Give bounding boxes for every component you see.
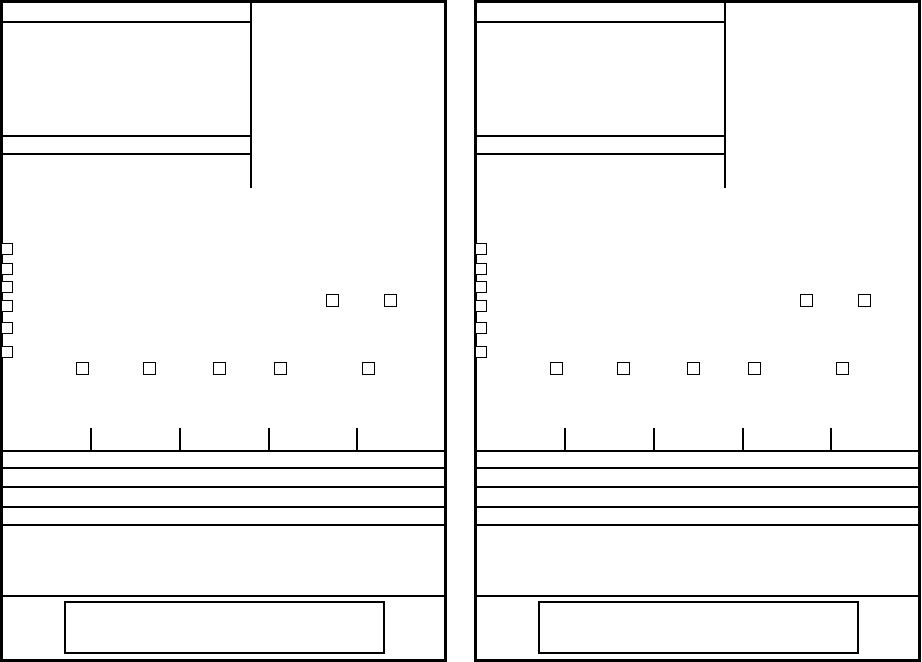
edge-checkbox-1[interactable] bbox=[475, 243, 487, 255]
edge-checkbox-3[interactable] bbox=[1, 281, 13, 293]
column-tick-mark-2 bbox=[653, 428, 655, 450]
category-checkbox-5[interactable] bbox=[836, 362, 849, 375]
column-tick-mark-4 bbox=[356, 428, 358, 450]
edge-checkbox-5[interactable] bbox=[1, 322, 13, 334]
form-sheet bbox=[0, 0, 922, 662]
column-tick-mark-2 bbox=[179, 428, 181, 450]
row-rule-4 bbox=[0, 506, 447, 508]
category-checkbox-2[interactable] bbox=[617, 362, 630, 375]
category-checkbox-4[interactable] bbox=[748, 362, 761, 375]
category-checkbox-3[interactable] bbox=[213, 362, 226, 375]
row-rule-3 bbox=[0, 486, 447, 488]
footer-entry-box bbox=[538, 601, 859, 654]
category-checkbox-1[interactable] bbox=[76, 362, 89, 375]
column-tick-mark-1 bbox=[90, 428, 92, 450]
column-tick-mark-4 bbox=[830, 428, 832, 450]
header-rule-1 bbox=[474, 21, 726, 23]
option-checkbox-2[interactable] bbox=[858, 294, 871, 307]
edge-checkbox-5[interactable] bbox=[475, 322, 487, 334]
row-rule-1 bbox=[474, 450, 921, 452]
slip-border bbox=[474, 0, 921, 662]
category-checkbox-3[interactable] bbox=[687, 362, 700, 375]
edge-checkbox-2[interactable] bbox=[1, 263, 13, 275]
header-rule-2 bbox=[474, 135, 726, 137]
option-checkbox-2[interactable] bbox=[384, 294, 397, 307]
header-divider-line bbox=[724, 0, 726, 188]
footer-entry-box bbox=[64, 601, 385, 654]
category-checkbox-1[interactable] bbox=[550, 362, 563, 375]
slip-border bbox=[0, 0, 447, 662]
column-tick-mark-3 bbox=[268, 428, 270, 450]
edge-checkbox-6[interactable] bbox=[1, 346, 13, 358]
row-rule-5 bbox=[474, 524, 921, 526]
edge-checkbox-2[interactable] bbox=[475, 263, 487, 275]
row-rule-2 bbox=[0, 467, 447, 469]
row-rule-1 bbox=[0, 450, 447, 452]
payment-slip-left bbox=[0, 0, 447, 662]
column-tick-mark-1 bbox=[564, 428, 566, 450]
header-divider-line bbox=[250, 0, 252, 188]
option-checkbox-1[interactable] bbox=[800, 294, 813, 307]
row-rule-2 bbox=[474, 467, 921, 469]
option-checkbox-1[interactable] bbox=[326, 294, 339, 307]
header-rule-2 bbox=[0, 135, 252, 137]
payment-slip-right bbox=[474, 0, 921, 662]
row-rule-6 bbox=[0, 595, 447, 597]
row-rule-3 bbox=[474, 486, 921, 488]
edge-checkbox-3[interactable] bbox=[475, 281, 487, 293]
edge-checkbox-1[interactable] bbox=[1, 243, 13, 255]
header-rule-1 bbox=[0, 21, 252, 23]
row-rule-6 bbox=[474, 595, 921, 597]
row-rule-5 bbox=[0, 524, 447, 526]
header-rule-3 bbox=[474, 153, 726, 155]
edge-checkbox-6[interactable] bbox=[475, 346, 487, 358]
edge-checkbox-4[interactable] bbox=[1, 300, 13, 312]
edge-checkbox-4[interactable] bbox=[475, 300, 487, 312]
row-rule-4 bbox=[474, 506, 921, 508]
category-checkbox-2[interactable] bbox=[143, 362, 156, 375]
header-rule-3 bbox=[0, 153, 252, 155]
column-tick-mark-3 bbox=[742, 428, 744, 450]
category-checkbox-4[interactable] bbox=[274, 362, 287, 375]
category-checkbox-5[interactable] bbox=[362, 362, 375, 375]
